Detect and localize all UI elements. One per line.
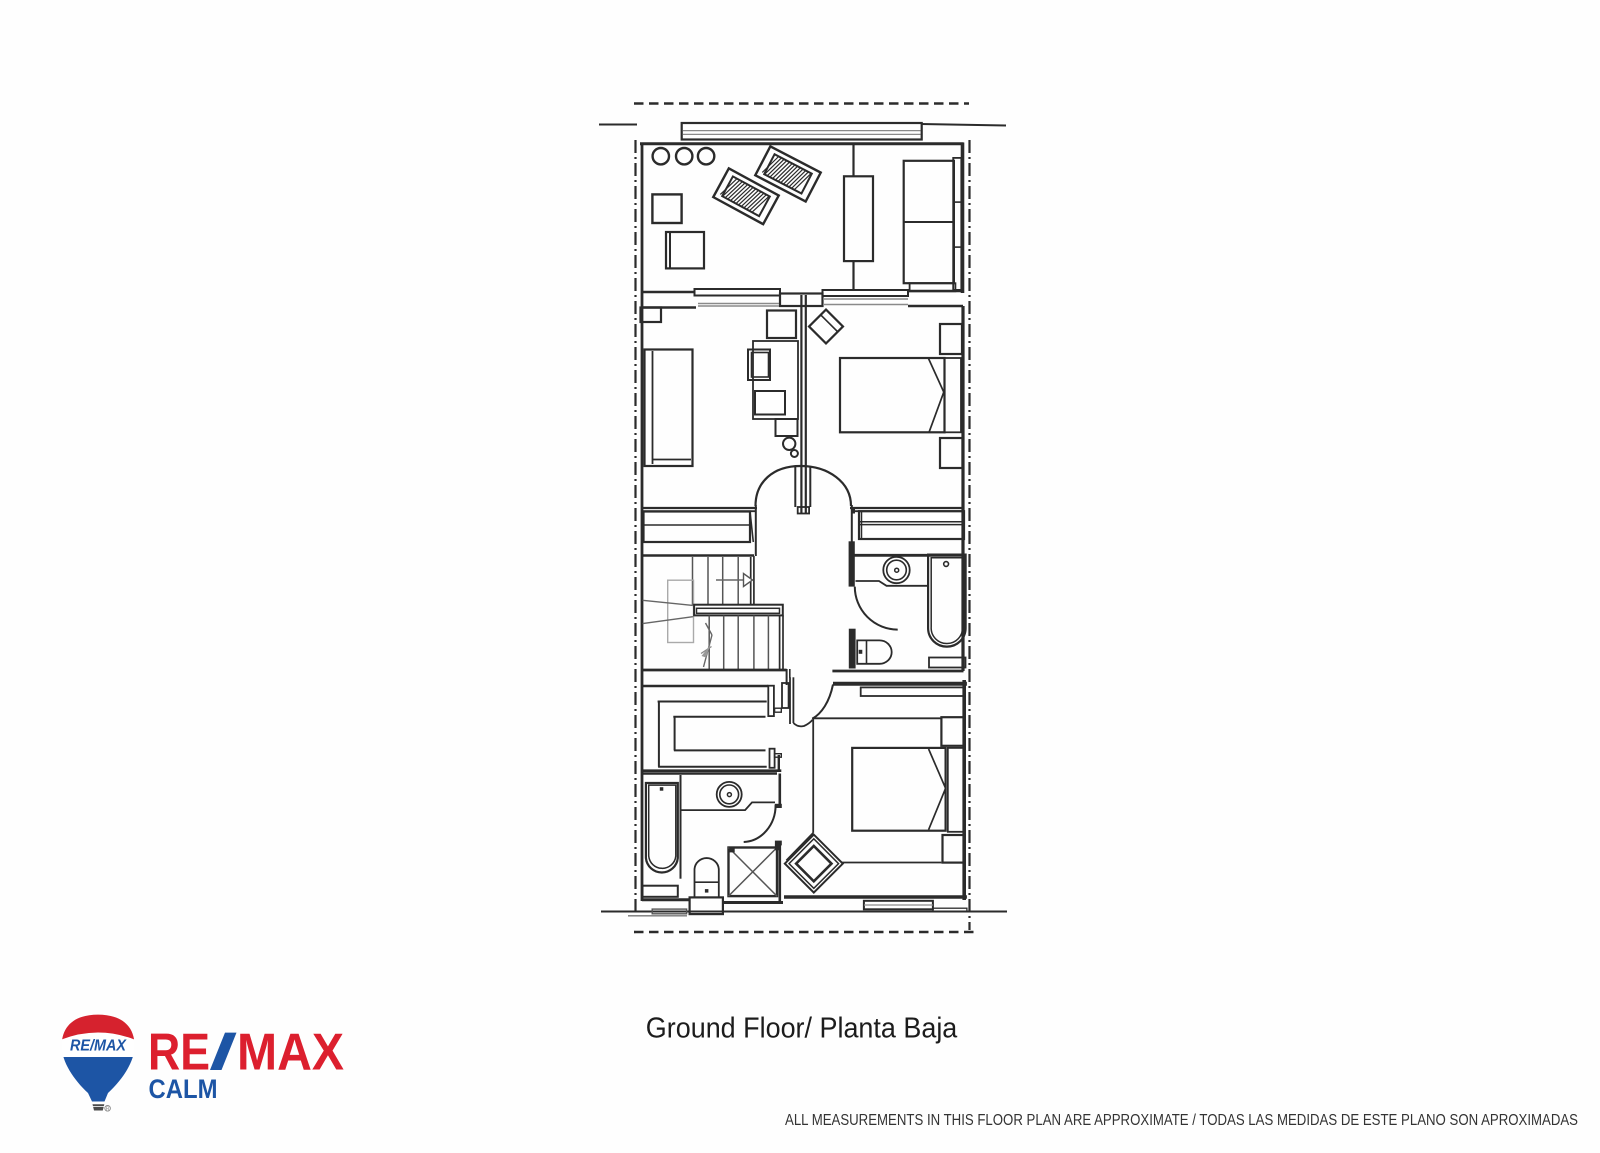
svg-text:RE/MAX: RE/MAX <box>70 1038 127 1055</box>
svg-text:Ground Floor/ Planta Baja: Ground Floor/ Planta Baja <box>646 1012 958 1044</box>
svg-text:RE: RE <box>148 1024 210 1082</box>
svg-text:ALL MEASUREMENTS IN THIS FLOOR: ALL MEASUREMENTS IN THIS FLOOR PLAN ARE … <box>785 1112 1578 1129</box>
svg-text:R: R <box>106 1106 110 1112</box>
svg-text:MAX: MAX <box>237 1024 344 1082</box>
svg-text:CALM: CALM <box>149 1074 218 1104</box>
